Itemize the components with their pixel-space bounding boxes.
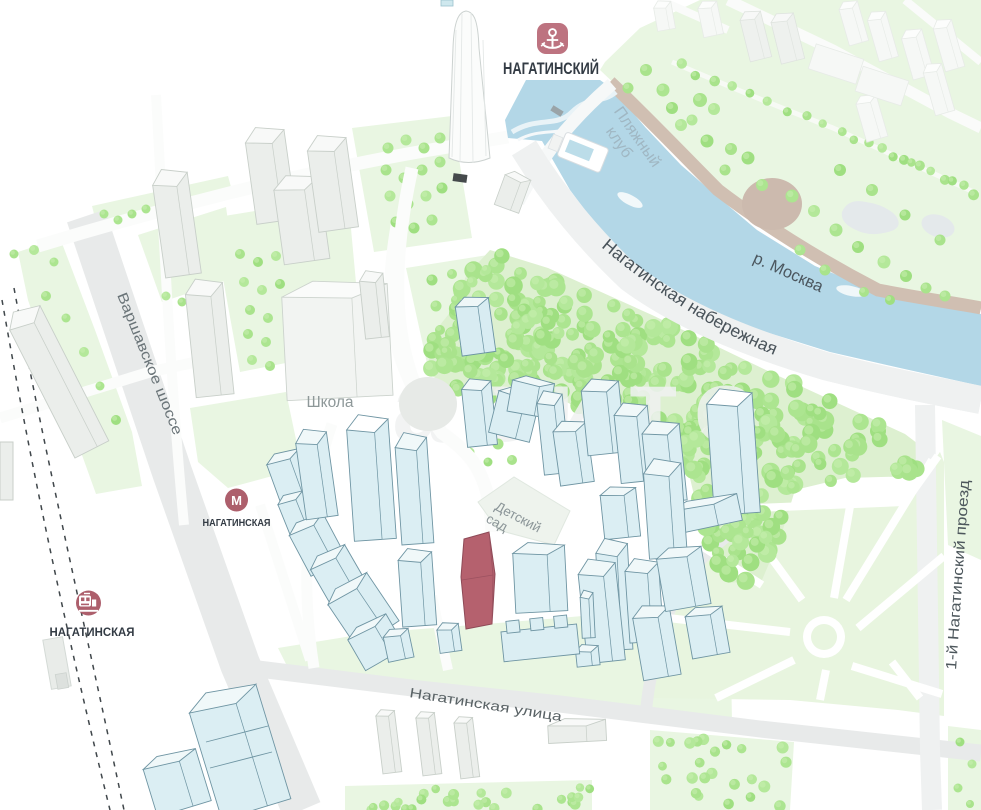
svg-text:НАГАТИНСКАЯ: НАГАТИНСКАЯ [50, 627, 135, 639]
svg-text:НАГАТИНСКИЙ: НАГАТИНСКИЙ [503, 59, 599, 78]
svg-text:М: М [231, 493, 242, 508]
svg-text:Школа: Школа [306, 394, 353, 411]
svg-text:НАГАТИНСКАЯ: НАГАТИНСКАЯ [203, 517, 271, 529]
